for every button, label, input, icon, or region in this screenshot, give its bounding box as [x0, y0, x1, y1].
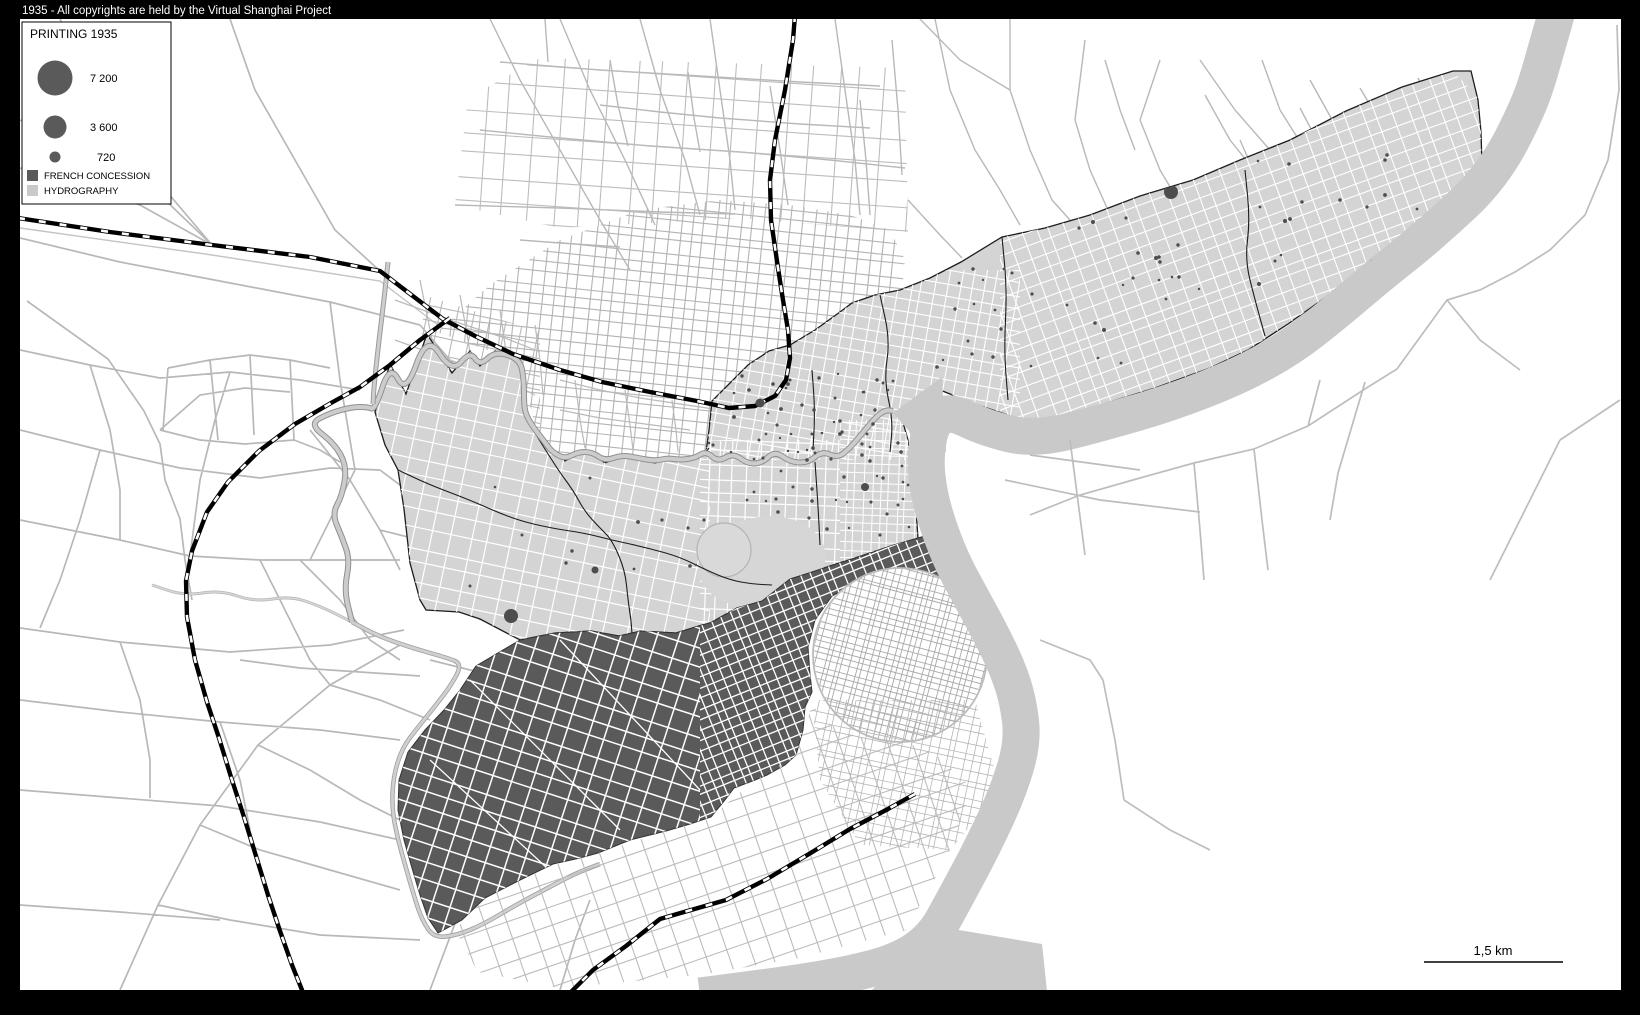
- svg-text:3 600: 3 600: [90, 122, 118, 134]
- svg-text:FRENCH CONCESSION: FRENCH CONCESSION: [44, 171, 150, 182]
- svg-text:1,5 km: 1,5 km: [1473, 943, 1512, 958]
- svg-text:7 200: 7 200: [90, 73, 118, 85]
- svg-text:PRINTING 1935: PRINTING 1935: [30, 27, 118, 41]
- svg-text:720: 720: [97, 152, 115, 164]
- svg-text:1935 - All copyrights are held: 1935 - All copyrights are held by the Vi…: [22, 5, 332, 17]
- svg-text:HYDROGRAPHY: HYDROGRAPHY: [44, 186, 119, 197]
